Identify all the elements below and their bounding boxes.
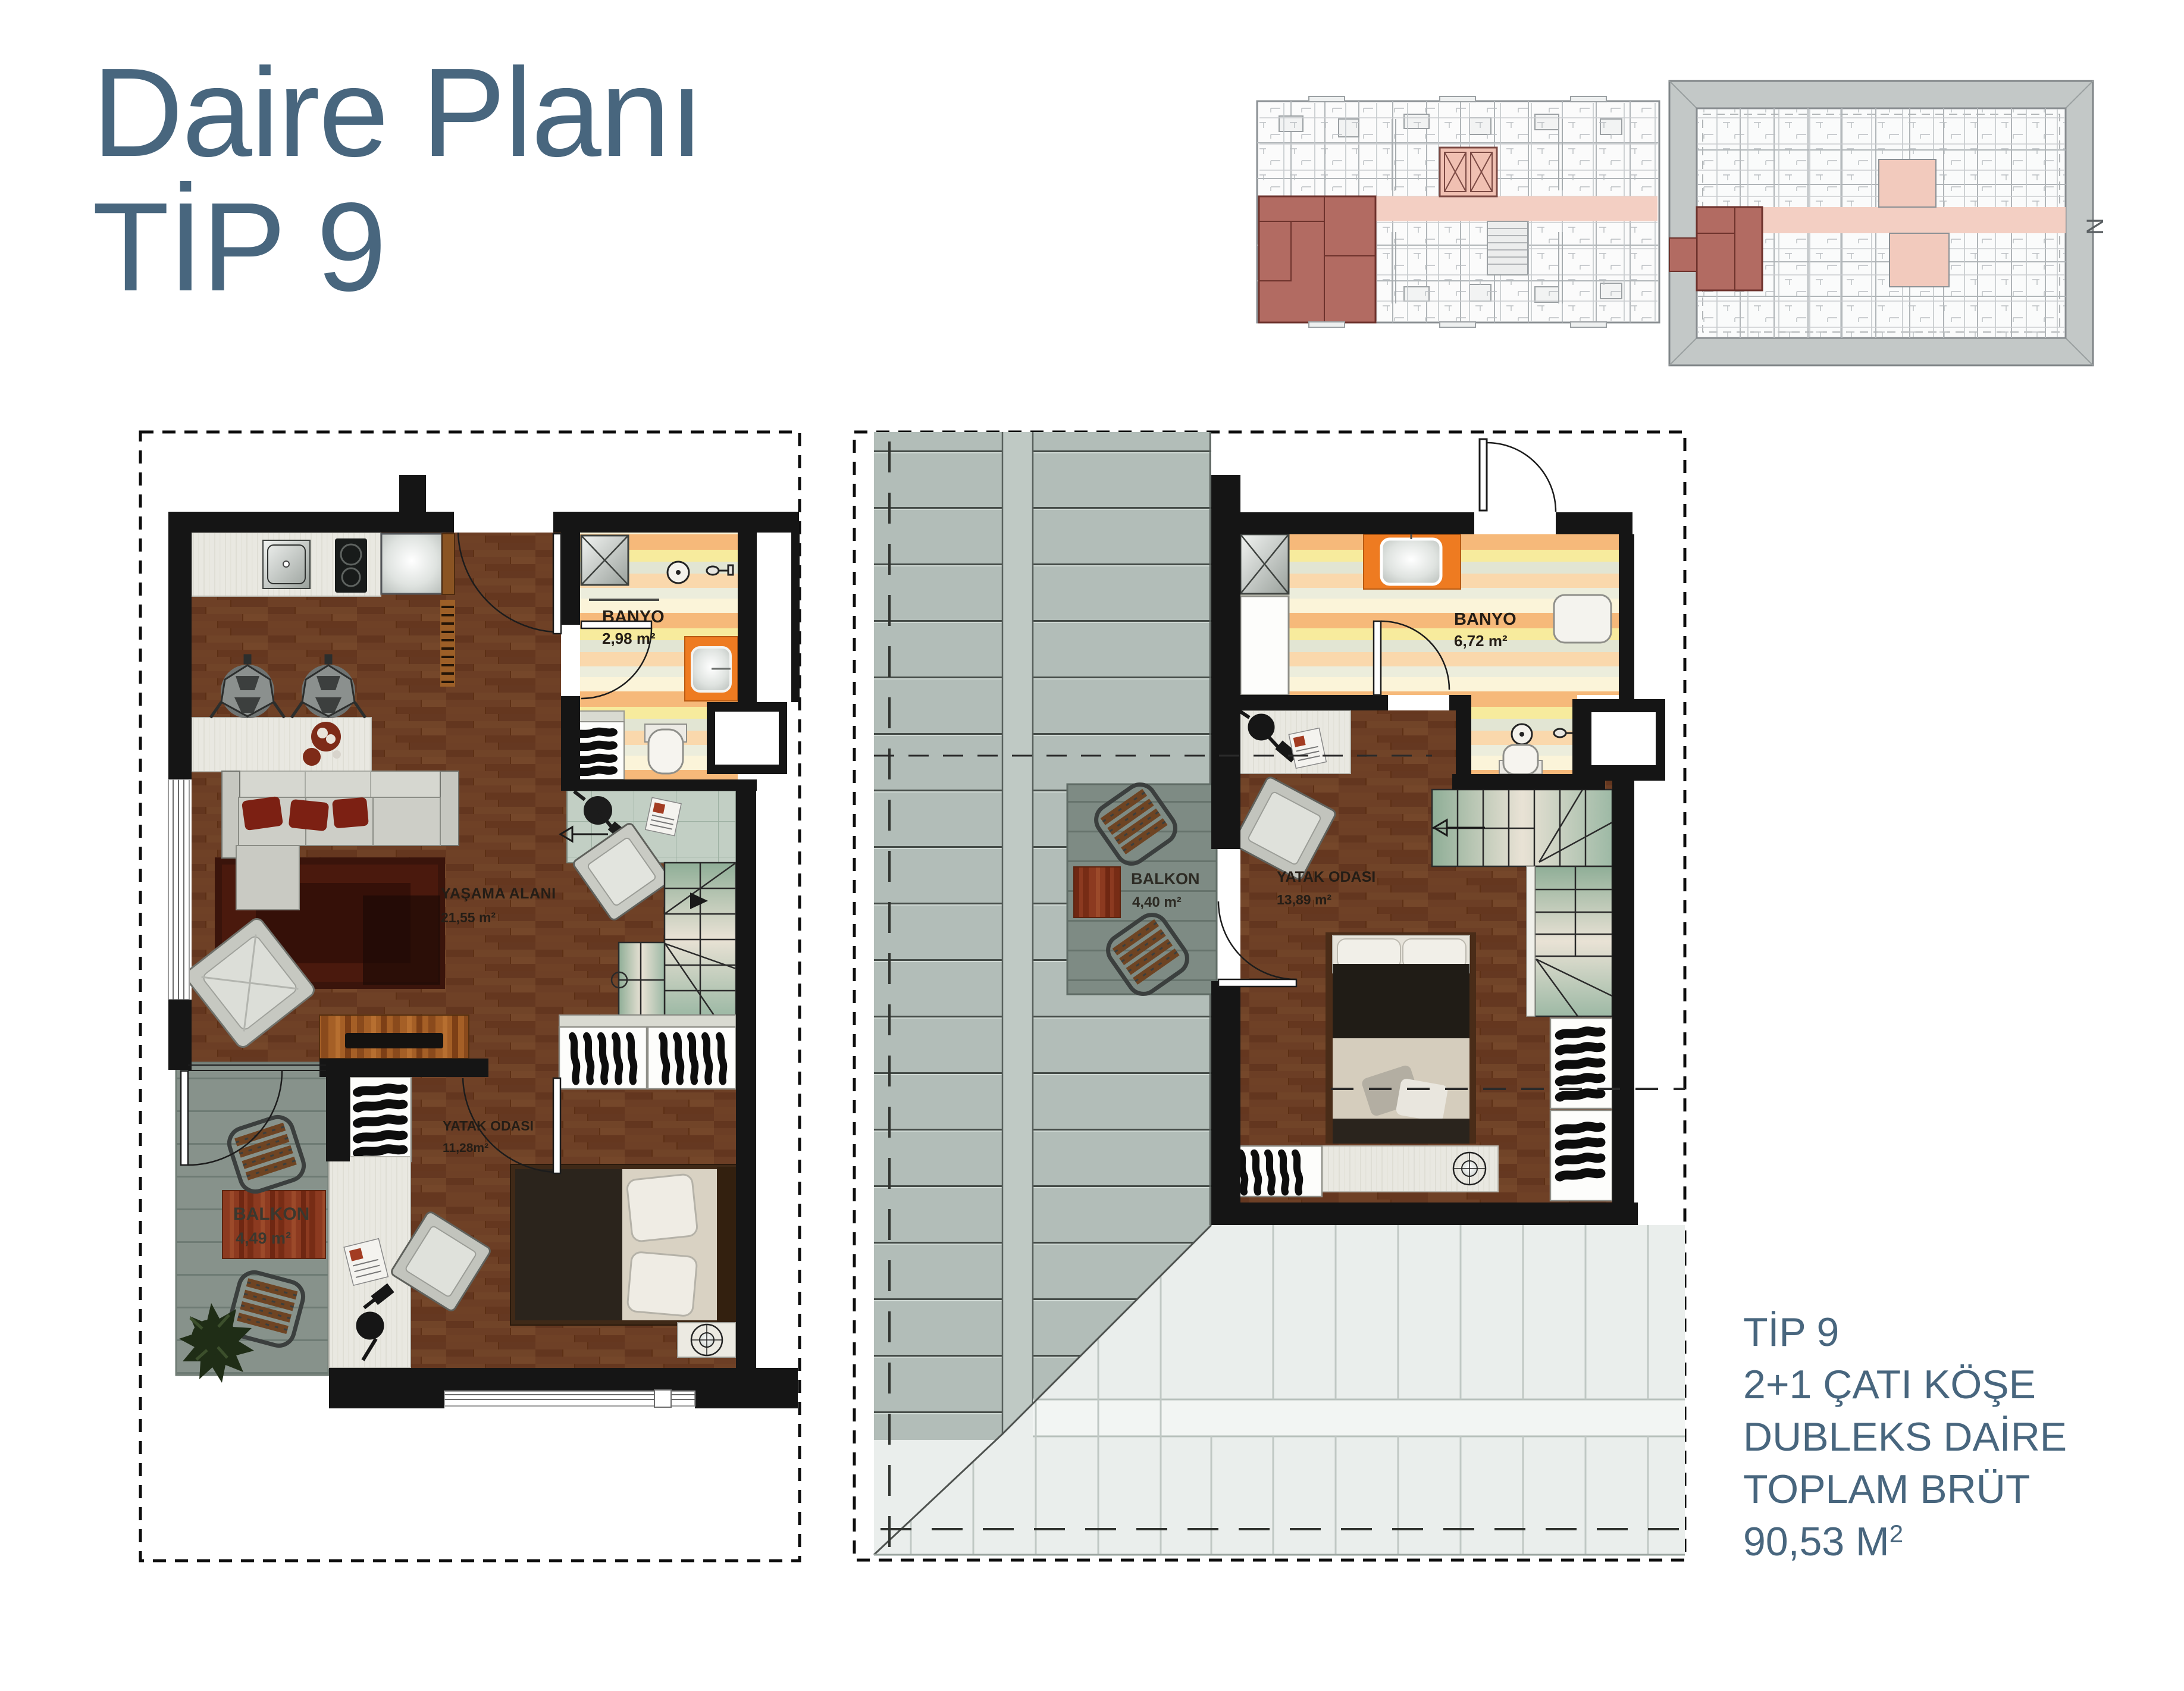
svg-text:4,49 m²: 4,49 m² xyxy=(236,1229,291,1247)
svg-text:DUBLEKS DAİRE: DUBLEKS DAİRE xyxy=(1743,1414,2067,1460)
svg-text:21,55 m²: 21,55 m² xyxy=(441,910,496,925)
svg-text:BALKON: BALKON xyxy=(233,1204,309,1224)
svg-text:TOPLAM BRÜT: TOPLAM BRÜT xyxy=(1743,1467,2030,1512)
svg-text:Daire Planı: Daire Planı xyxy=(92,42,703,183)
svg-text:6,72 m²: 6,72 m² xyxy=(1454,632,1508,650)
svg-text:90,53 M2: 90,53 M2 xyxy=(1743,1519,1903,1564)
svg-text:4,40 m²: 4,40 m² xyxy=(1132,894,1182,910)
svg-text:YATAK ODASI: YATAK ODASI xyxy=(1277,869,1375,885)
svg-text:YAŞAMA ALANI: YAŞAMA ALANI xyxy=(441,885,556,902)
svg-text:BANYO: BANYO xyxy=(1454,610,1516,629)
svg-text:13,89 m²: 13,89 m² xyxy=(1277,892,1331,907)
svg-text:TİP 9: TİP 9 xyxy=(1743,1310,1839,1355)
svg-text:YATAK ODASI: YATAK ODASI xyxy=(443,1118,534,1133)
svg-text:2,98 m²: 2,98 m² xyxy=(602,630,656,647)
svg-text:2+1 ÇATI KÖŞE: 2+1 ÇATI KÖŞE xyxy=(1743,1362,2036,1407)
svg-text:N: N xyxy=(2082,218,2108,235)
svg-text:TİP 9: TİP 9 xyxy=(92,176,386,317)
svg-text:11,28m²: 11,28m² xyxy=(443,1141,488,1155)
svg-text:BALKON: BALKON xyxy=(1131,870,1200,888)
